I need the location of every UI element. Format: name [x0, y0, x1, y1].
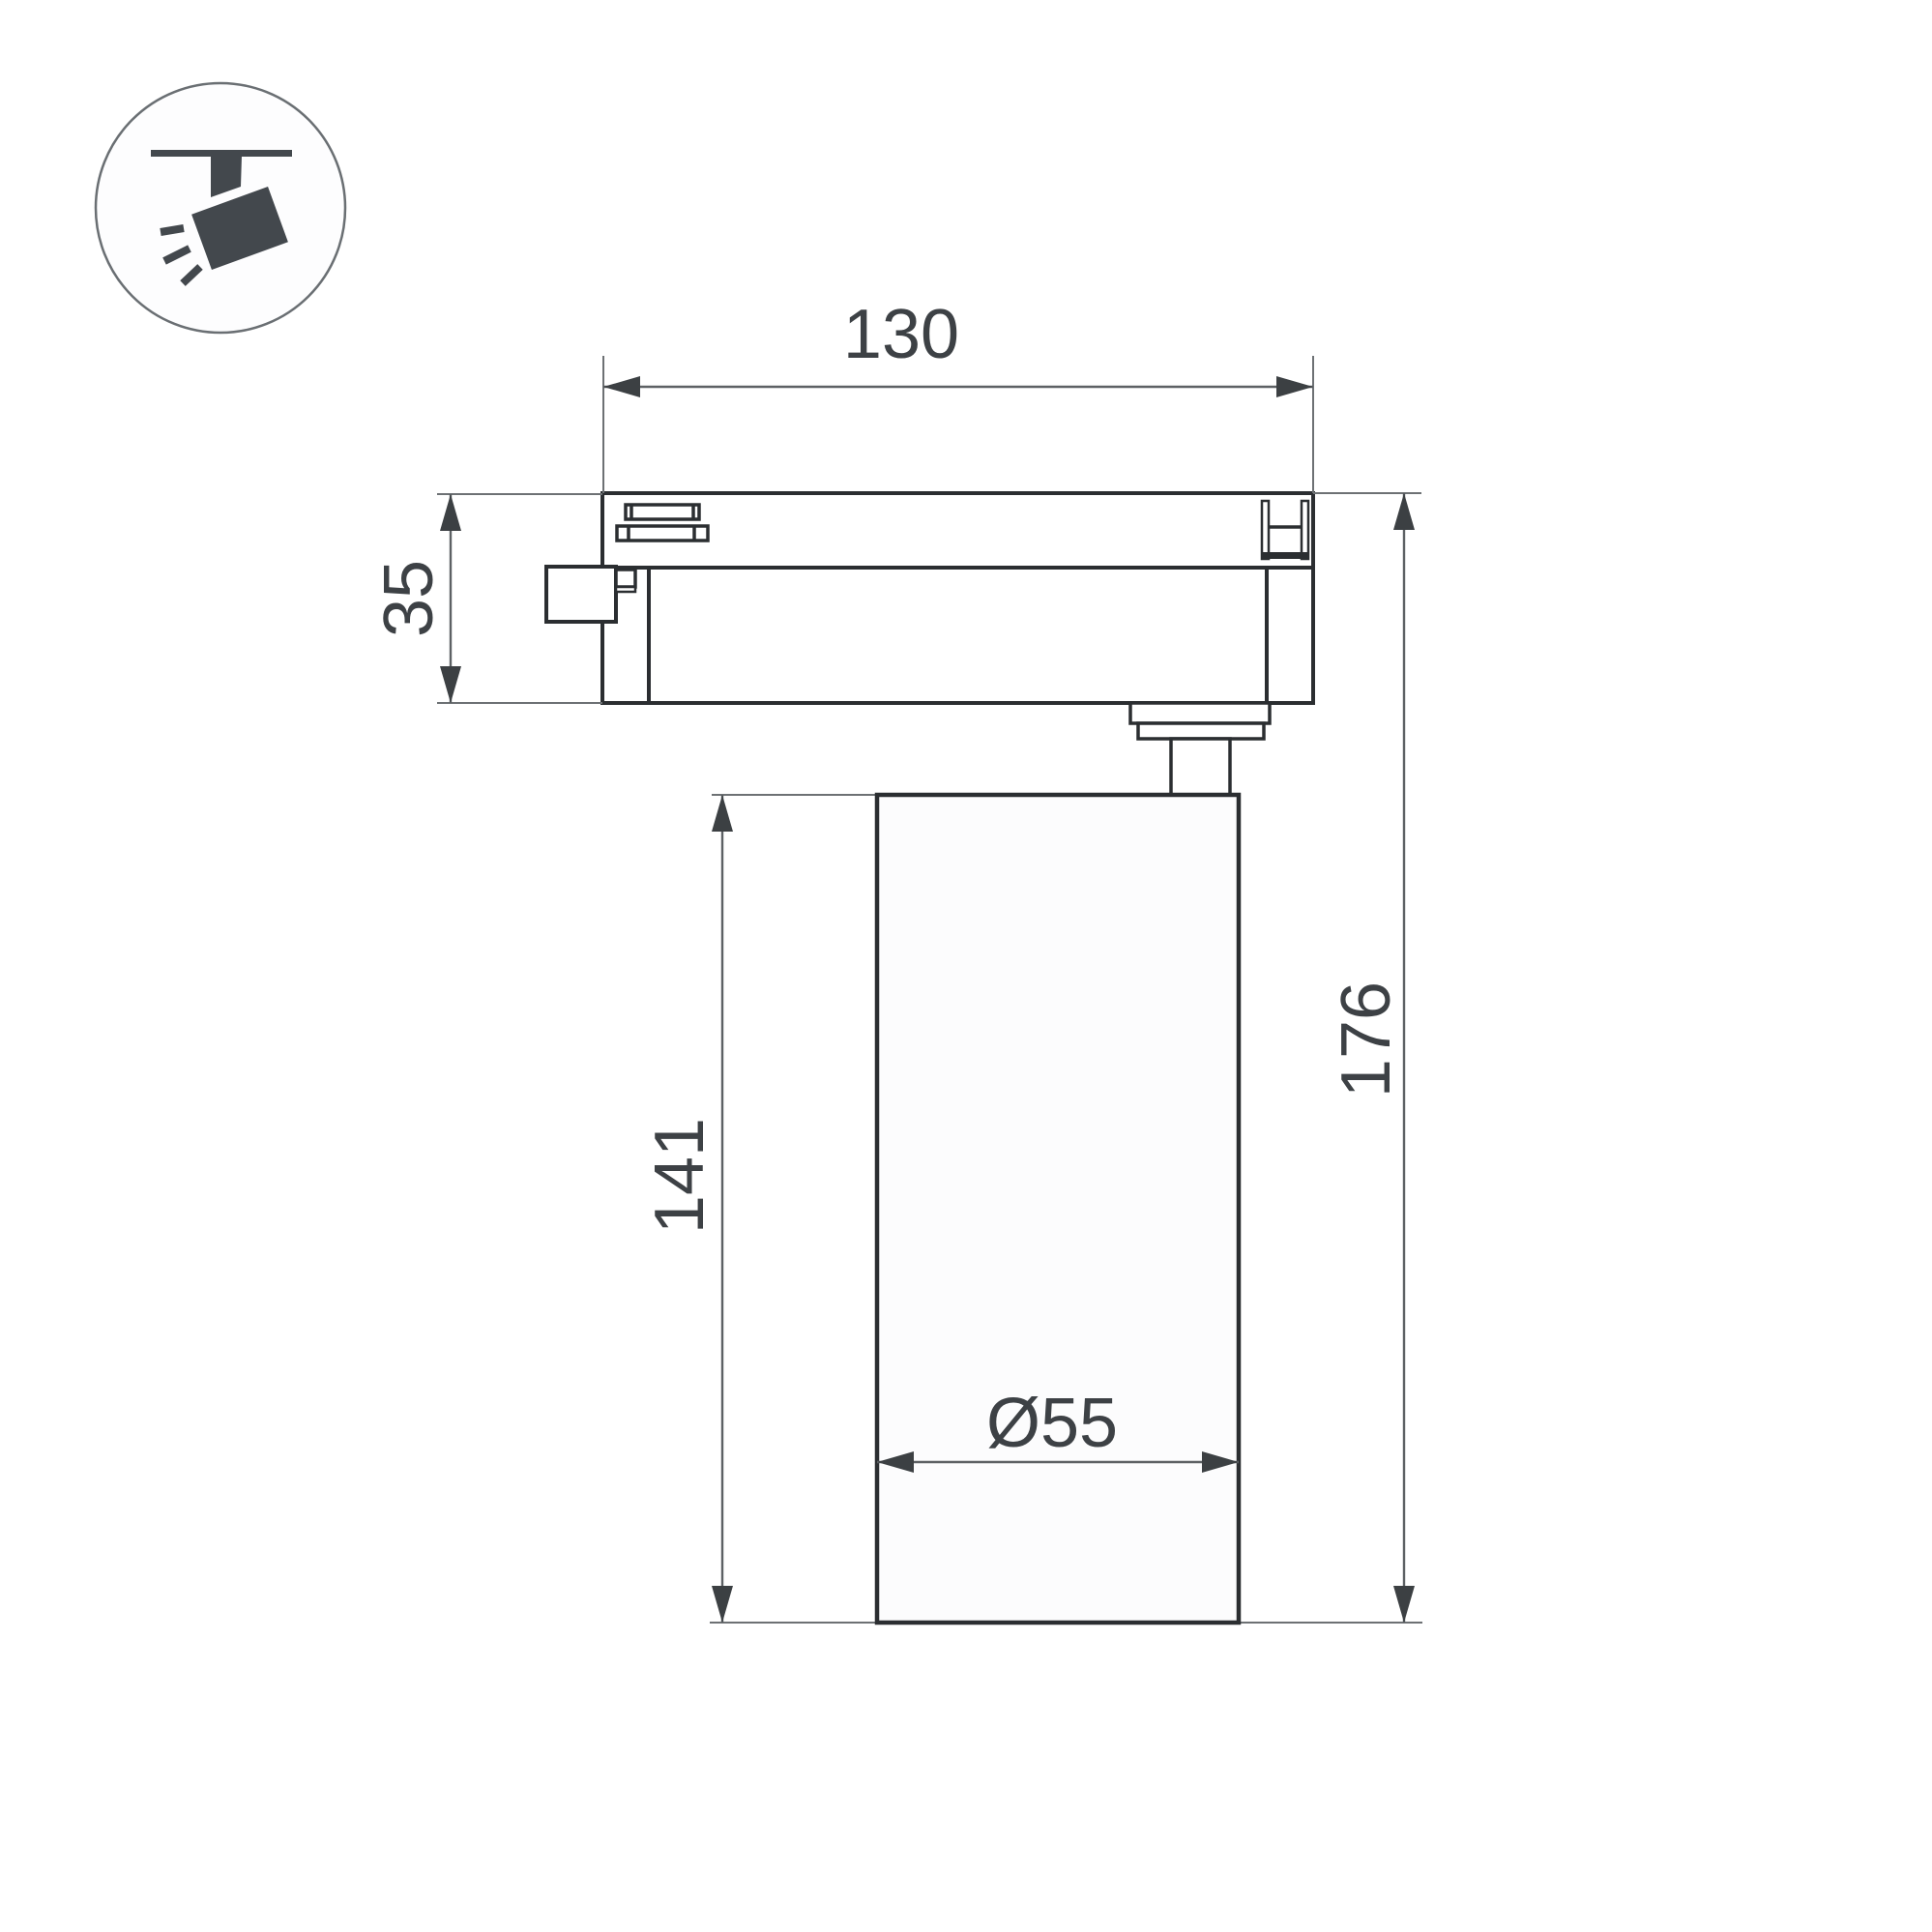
- lamp-cylinder: [877, 795, 1239, 1623]
- icon-track-bar: [151, 150, 292, 157]
- dim-label-adapter-height: 35: [370, 560, 448, 637]
- lock-lever: [546, 567, 616, 622]
- dimension-drawing: 130 35 141 176 Ø55: [0, 0, 1932, 1932]
- latch-detail: [616, 570, 635, 592]
- track-spotlight-icon: [96, 83, 345, 333]
- dim-label-diameter: Ø55: [986, 1385, 1118, 1462]
- dim-label-body-height: 141: [641, 1118, 718, 1234]
- dim-label-track-width: 130: [843, 296, 959, 373]
- drawing-canvas: 130 35 141 176 Ø55: [0, 0, 1932, 1932]
- dim-label-overall-height: 176: [1328, 981, 1405, 1098]
